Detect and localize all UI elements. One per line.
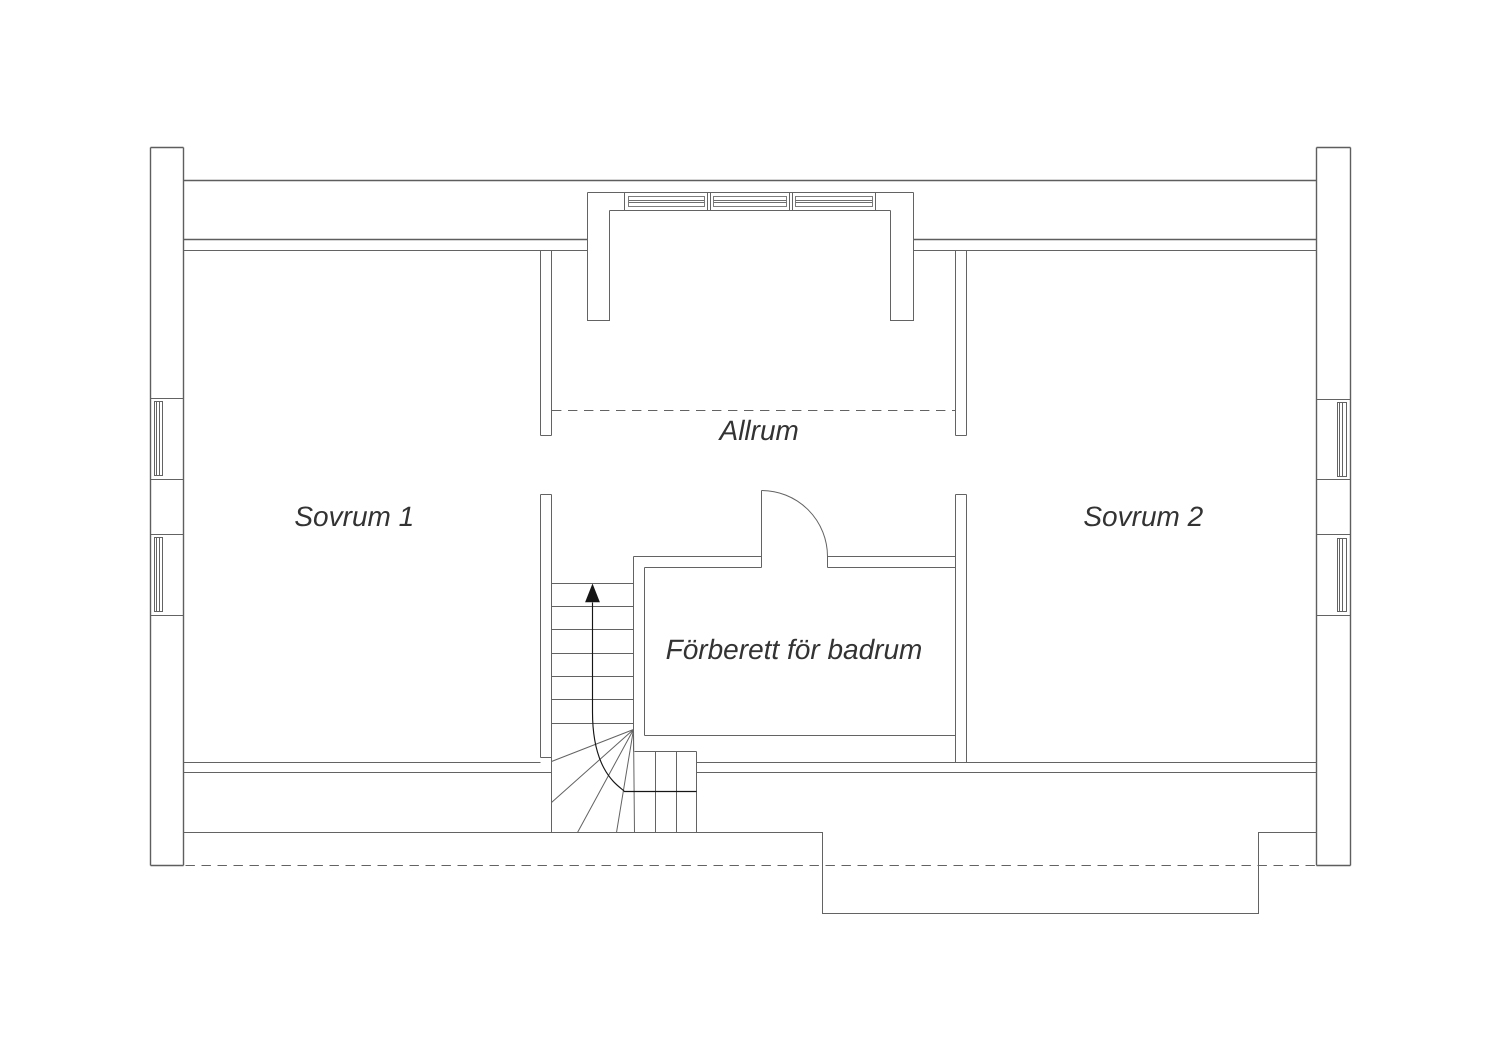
svg-text:Förberett för badrum: Förberett för badrum	[666, 634, 923, 665]
svg-text:Sovrum 1: Sovrum 1	[294, 501, 414, 532]
svg-text:Allrum: Allrum	[718, 415, 799, 446]
svg-text:Sovrum 2: Sovrum 2	[1083, 501, 1203, 532]
